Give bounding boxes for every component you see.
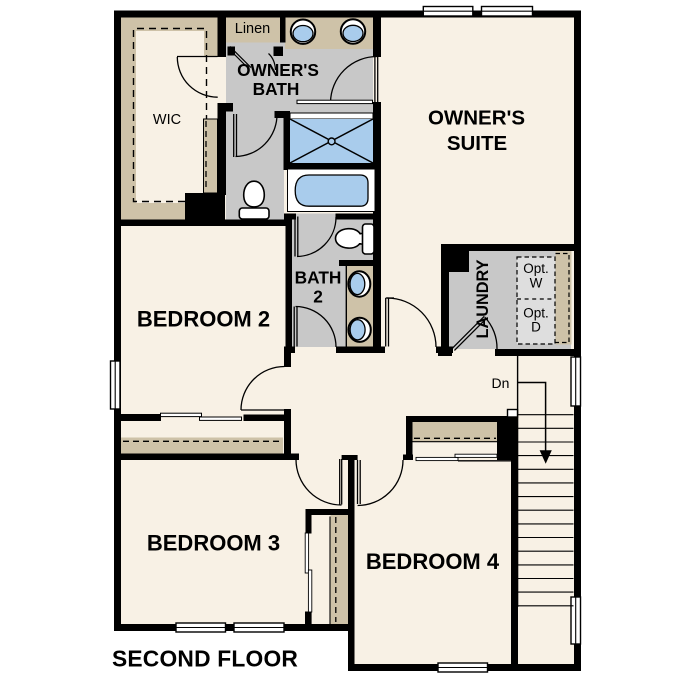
svg-text:Opt.: Opt. xyxy=(523,306,549,321)
svg-text:WIC: WIC xyxy=(153,112,181,128)
svg-text:BEDROOM 3: BEDROOM 3 xyxy=(147,531,280,556)
svg-text:BEDROOM 4: BEDROOM 4 xyxy=(366,549,500,574)
svg-text:Dn: Dn xyxy=(492,375,510,391)
svg-text:BEDROOM 2: BEDROOM 2 xyxy=(137,307,270,332)
svg-text:Linen: Linen xyxy=(235,21,270,37)
svg-text:OWNER'S: OWNER'S xyxy=(237,60,319,80)
svg-text:LAUNDRY: LAUNDRY xyxy=(474,259,492,338)
svg-text:SECOND FLOOR: SECOND FLOOR xyxy=(112,646,298,672)
svg-text:SUITE: SUITE xyxy=(447,132,507,155)
svg-text:D: D xyxy=(531,320,541,335)
svg-text:BATH: BATH xyxy=(253,79,300,99)
svg-text:W: W xyxy=(530,275,543,290)
svg-text:2: 2 xyxy=(313,287,323,307)
svg-text:OWNER'S: OWNER'S xyxy=(428,107,525,130)
svg-text:BATH: BATH xyxy=(295,268,342,288)
svg-text:Opt.: Opt. xyxy=(523,261,549,276)
